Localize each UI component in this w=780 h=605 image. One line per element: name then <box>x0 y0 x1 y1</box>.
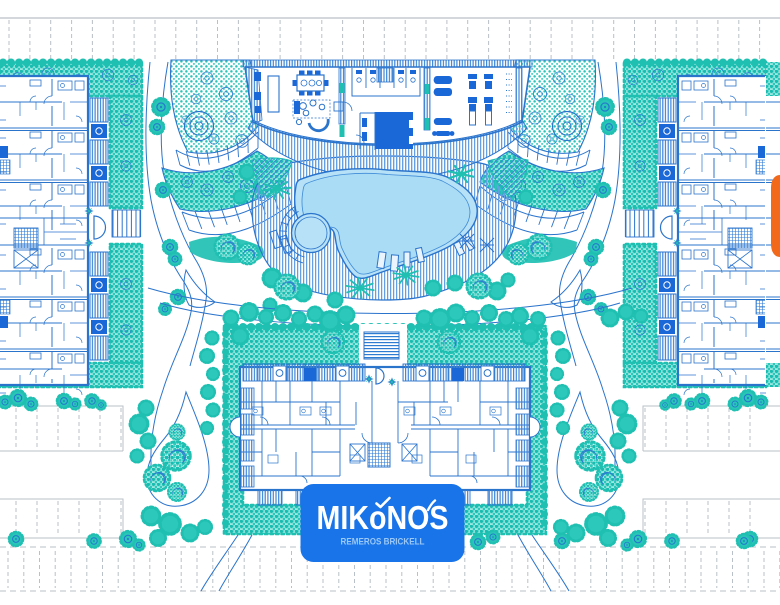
svg-text:REMEROS BRICKELL: REMEROS BRICKELL <box>341 537 425 548</box>
